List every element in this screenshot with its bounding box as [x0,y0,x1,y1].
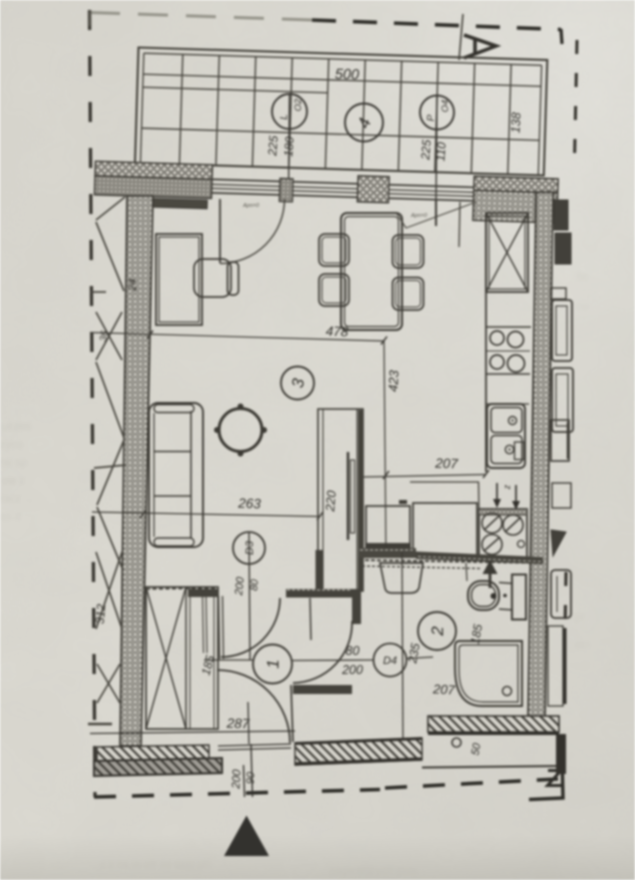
svg-text:O4: O4 [440,100,451,113]
svg-text:200: 200 [233,576,247,597]
svg-text:312: 312 [93,603,109,624]
svg-text:207: 207 [432,681,456,697]
svg-text:263: 263 [237,496,262,512]
svg-text:207: 207 [434,456,459,472]
svg-text:80: 80 [346,644,360,658]
svg-text:423: 423 [385,369,401,392]
svg-text:200: 200 [341,663,363,677]
svg-text:225: 225 [265,135,280,157]
svg-text:zyco: zyco [0,439,23,451]
svg-text:D3: D3 [244,540,256,555]
svg-text:O2: O2 [293,98,304,111]
svg-text:em: em [575,639,590,651]
svg-text:pozn iejs ych prac: pozn iejs ych prac [330,865,419,877]
svg-text:Apn=0: Apn=0 [242,203,260,209]
svg-text:287: 287 [225,716,250,732]
svg-text:200: 200 [230,769,243,790]
svg-text:c z ns m otr ze wsp oln: c z ns m otr ze wsp oln [100,859,212,871]
svg-text:bc: bc [577,271,589,283]
svg-text:Apn=0: Apn=0 [410,213,428,219]
svg-text:racz: racz [0,493,21,505]
svg-text:z: z [502,484,512,490]
svg-text:ne sp: ne sp [0,457,27,469]
svg-text:110: 110 [433,141,448,161]
svg-text:138: 138 [508,112,523,134]
svg-text:pr: pr [575,611,585,623]
svg-text:90: 90 [245,771,258,785]
svg-text:uczes: uczes [2,420,31,433]
svg-text:500: 500 [335,67,360,84]
svg-text:ow z: ow z [2,475,25,487]
svg-text:24: 24 [127,279,139,293]
svg-text:80: 80 [248,579,261,592]
svg-text:ne: ne [577,301,589,313]
svg-text:225: 225 [418,139,433,161]
svg-text:L: L [279,114,290,120]
svg-text:478: 478 [325,324,349,340]
svg-text:2: 2 [428,626,447,637]
svg-text:180: 180 [281,136,296,157]
svg-text:D4: D4 [383,655,397,667]
svg-text:es d: es d [0,511,21,523]
svg-text:220: 220 [323,490,339,513]
svg-text:1: 1 [264,659,283,668]
svg-text:P: P [425,114,437,121]
